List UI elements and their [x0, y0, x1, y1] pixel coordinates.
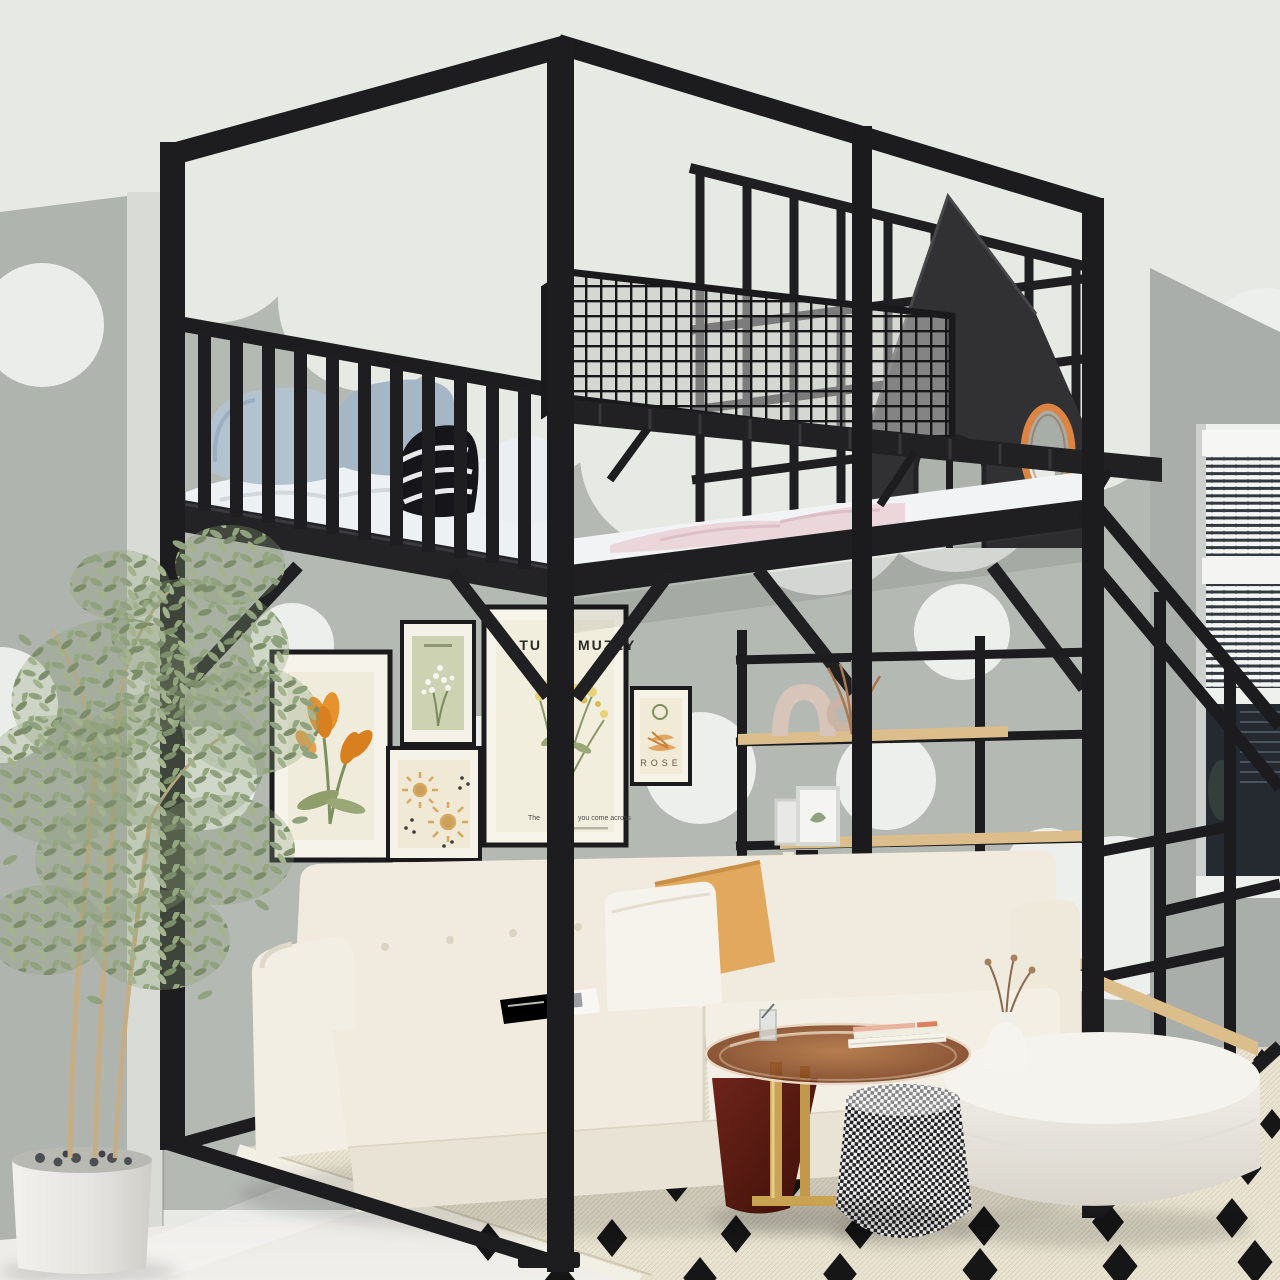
post-near-foot — [518, 1252, 580, 1268]
glass-cup — [760, 1004, 776, 1040]
blinds-headrail — [1202, 430, 1280, 456]
poster-muzzy-caption-left: The — [528, 815, 540, 822]
poster-muzzy-title-left: TU — [519, 637, 542, 653]
window-blinds[interactable] — [1206, 456, 1280, 556]
plant-pot — [12, 1160, 152, 1274]
room-scene: TU MUZZY The you come across ROSE — [0, 0, 1280, 1280]
poster-rose: ROSE — [632, 688, 690, 784]
post-near — [547, 40, 574, 1272]
poster-line-daisies — [388, 748, 480, 860]
poster-white-bouquet — [402, 622, 474, 744]
poster-rose-title: ROSE — [640, 758, 682, 768]
poster-muzzy-caption-right: you come across — [578, 815, 631, 822]
room-photo: TU MUZZY The you come across ROSE — [0, 0, 1280, 1280]
